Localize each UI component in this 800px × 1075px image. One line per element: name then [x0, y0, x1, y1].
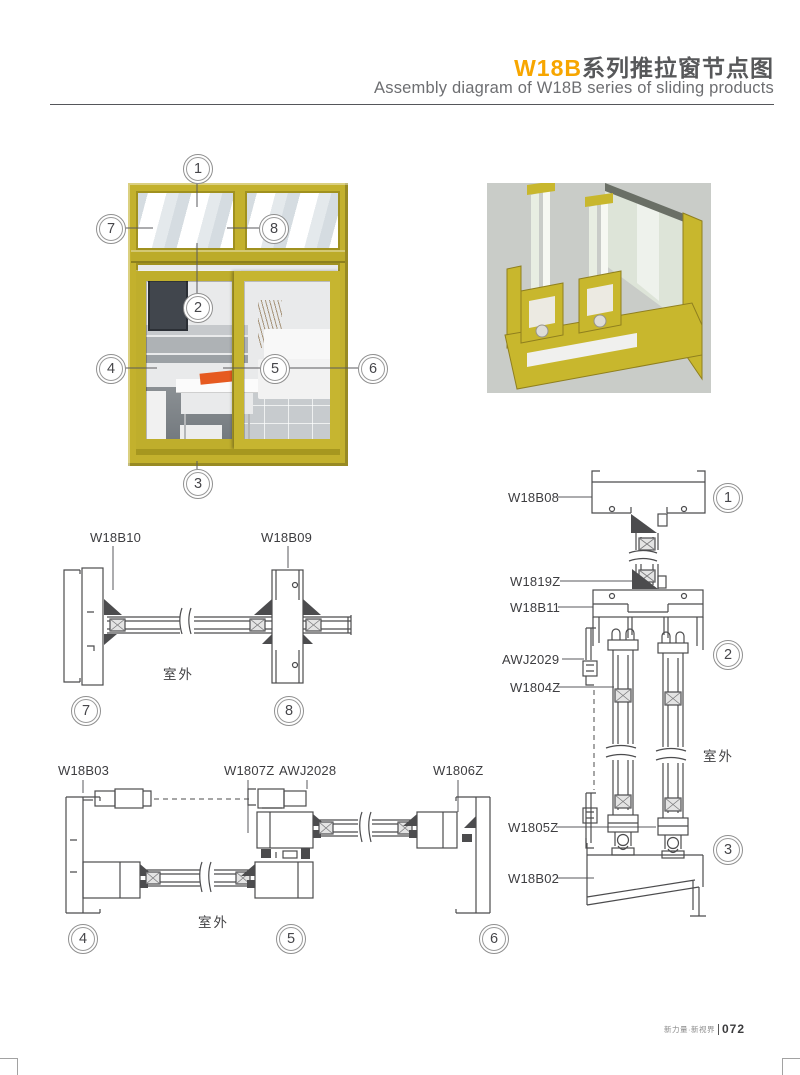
- footer-separator: [718, 1024, 719, 1035]
- marker-number: 6: [490, 931, 498, 947]
- callout-number: 1: [194, 161, 202, 177]
- part-label-w18b08: W18B08: [508, 490, 559, 505]
- callout-number: 5: [271, 361, 279, 377]
- section-marker-7: 7: [71, 696, 101, 726]
- profile-3d-render-art: [487, 183, 711, 393]
- outdoor-label-c: 室外: [703, 745, 734, 765]
- cover-profile-bottom: [583, 793, 597, 848]
- section-marker-2: 2: [713, 640, 743, 670]
- callout-marker-4: 4: [96, 354, 126, 384]
- glazing-bead-top: [658, 514, 667, 526]
- sash-stile-right-w1806z: [403, 812, 476, 848]
- page-title-accent: W18B: [514, 55, 582, 81]
- page-footer: 新力量·新视界 072: [664, 1022, 745, 1036]
- part-label-awj2028: AWJ2028: [279, 763, 336, 778]
- label-leaders: [556, 497, 656, 878]
- break-symbol: [629, 551, 657, 562]
- outdoor-label-b: 室外: [198, 911, 229, 931]
- corner-mark: [782, 1058, 800, 1075]
- sash-stile-bottom-left: [83, 862, 154, 898]
- sash-bottom-rails-w1805z: [608, 815, 688, 853]
- break-symbol: [360, 812, 371, 842]
- section-marker-8: 8: [274, 696, 304, 726]
- leader-lines: [124, 182, 358, 469]
- callout-number: 2: [194, 300, 202, 316]
- break-symbol: [656, 749, 686, 761]
- sill-profile-w18b02: [587, 843, 706, 916]
- callout-number: 6: [369, 361, 377, 377]
- callout-number: 7: [107, 221, 115, 237]
- footer-tagline: 新力量·新视界: [664, 1024, 715, 1035]
- part-label-w1819z: W1819Z: [510, 574, 560, 589]
- sash-stile-top-row-w1807z: [257, 812, 327, 848]
- section-detail-7-8-drawing: [55, 520, 400, 730]
- marker-number: 3: [724, 842, 732, 858]
- callout-marker-8: 8: [259, 214, 289, 244]
- part-label-w1804z: W1804Z: [510, 680, 560, 695]
- break-symbol: [606, 746, 636, 758]
- callout-number: 8: [270, 221, 278, 237]
- section-marker-3: 3: [713, 835, 743, 865]
- section-marker-6: 6: [479, 924, 509, 954]
- part-label-w1806z: W1806Z: [433, 763, 483, 778]
- page-subtitle: Assembly diagram of W18B series of slidi…: [374, 79, 774, 98]
- part-label-awj2029: AWJ2029: [502, 652, 559, 667]
- cover-profile-awj2029: [583, 628, 597, 685]
- sash-stile-bottom-middle: [241, 862, 313, 898]
- part-label-w18b11: W18B11: [510, 600, 560, 615]
- jamb-profile-right: [456, 797, 490, 913]
- callout-marker-7: 7: [96, 214, 126, 244]
- page-number: 072: [722, 1022, 745, 1036]
- callout-number: 3: [194, 476, 202, 492]
- callout-marker-6: 6: [358, 354, 388, 384]
- corner-mark: [0, 1058, 18, 1075]
- page-title: W18B系列推拉窗节点图: [514, 49, 774, 83]
- part-label-w1805z: W1805Z: [508, 820, 558, 835]
- part-label-w18b02: W18B02: [508, 871, 559, 886]
- callout-marker-5: 5: [260, 354, 290, 384]
- glazing-wedge-top: [631, 514, 657, 533]
- profile-3d-render: [487, 183, 711, 393]
- interlock-hardware-section5: [261, 848, 310, 859]
- marker-number: 2: [724, 647, 732, 663]
- callout-marker-1: 1: [183, 154, 213, 184]
- label-leaders: [113, 546, 288, 590]
- outdoor-label-a: 室外: [163, 663, 194, 683]
- part-label-w18b09: W18B09: [261, 530, 312, 545]
- page-title-zh: 系列推拉窗节点图: [582, 55, 774, 81]
- section-marker-5: 5: [276, 924, 306, 954]
- part-label-w1807z: W1807Z: [224, 763, 274, 778]
- marker-number: 8: [285, 703, 293, 719]
- break-symbol: [200, 862, 211, 892]
- marker-number: 7: [82, 703, 90, 719]
- catalog-page: W18B系列推拉窗节点图 Assembly diagram of W18B se…: [0, 0, 800, 1075]
- marker-number: 1: [724, 490, 732, 506]
- section-marker-1: 1: [713, 483, 743, 513]
- part-label-w18b03: W18B03: [58, 763, 109, 778]
- section-marker-4: 4: [68, 924, 98, 954]
- head-frame-w18b08: [592, 471, 705, 513]
- sash-top-rails-w1804z: [608, 629, 688, 653]
- break-symbol: [180, 608, 191, 634]
- header-divider: [50, 104, 774, 105]
- callout-number: 4: [107, 361, 115, 377]
- glazing-bead-bottom: [658, 576, 666, 588]
- callout-marker-3: 3: [183, 469, 213, 499]
- glass-vertical-sashes: [606, 650, 686, 818]
- marker-number: 4: [79, 931, 87, 947]
- interlock-top-middle-awj2028: [248, 789, 306, 808]
- window-callout-leader-lines: [100, 150, 380, 495]
- interlock-top-left: [83, 789, 151, 808]
- glass-top-row: [313, 812, 417, 842]
- part-label-w18b10: W18B10: [90, 530, 141, 545]
- callout-marker-2: 2: [183, 293, 213, 323]
- section-detail-4-5-6-drawing: [55, 758, 510, 948]
- glass-bottom-row: [140, 862, 255, 892]
- marker-number: 5: [287, 931, 295, 947]
- mid-frame-w18b11: [593, 590, 703, 650]
